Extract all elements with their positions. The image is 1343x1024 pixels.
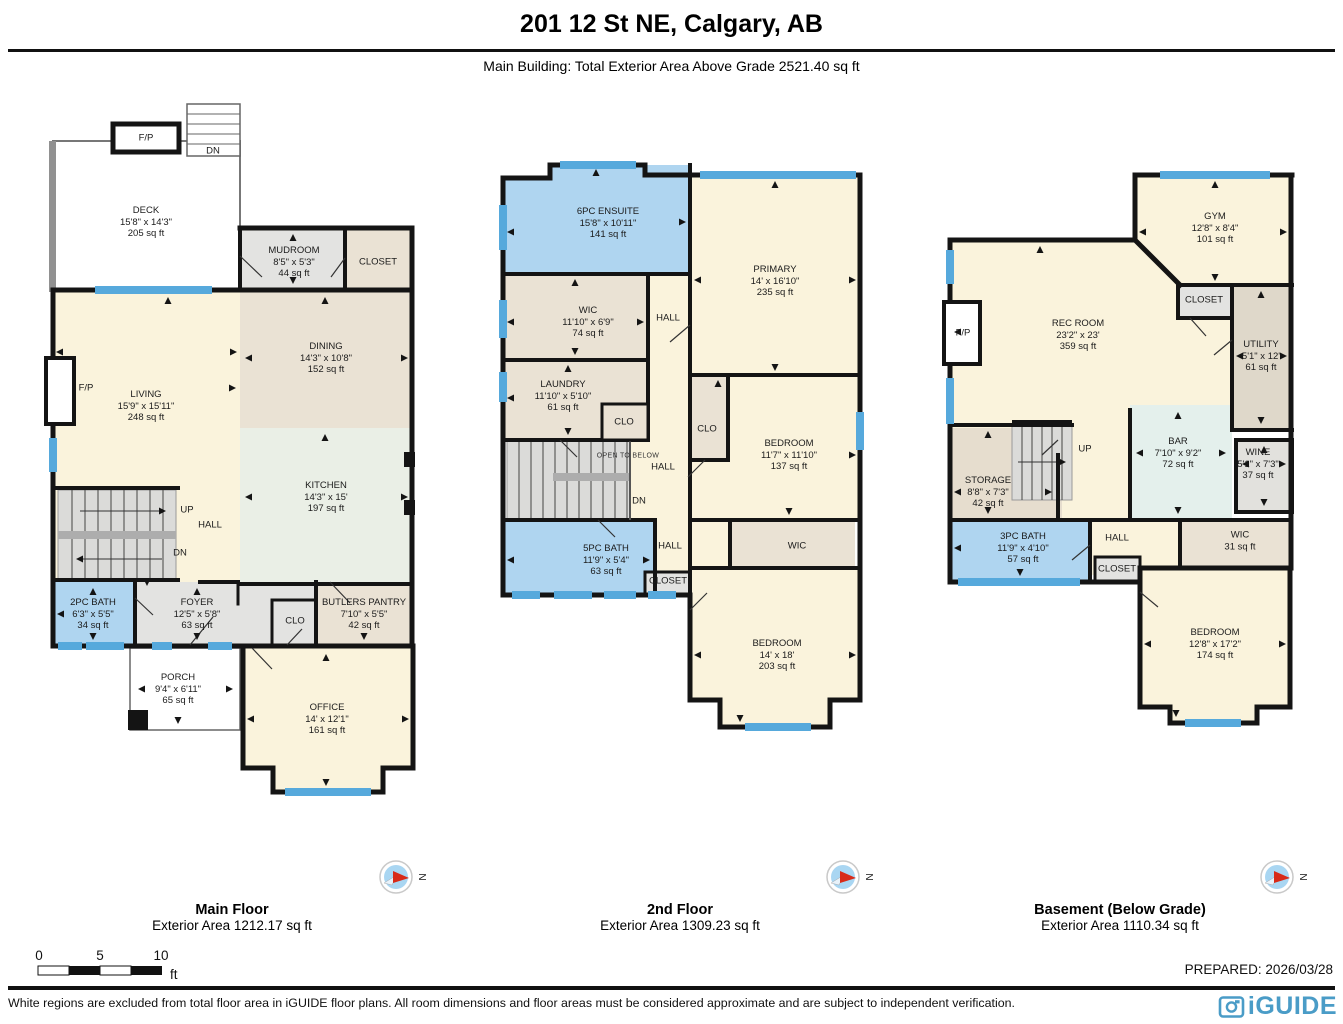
room-label-gym: GYM12'8" x 8'4"101 sq ft	[1192, 211, 1239, 246]
room-dims: 12'8" x 17'2"	[1189, 638, 1241, 650]
room-name: GYM	[1192, 211, 1239, 223]
dn-label: DN	[632, 496, 646, 507]
compass-icon: N	[380, 861, 427, 893]
iguide-logo: iGUIDE	[1218, 992, 1337, 1021]
room-area: 61 sq ft	[535, 402, 592, 414]
room-dims: 11'9" x 4'10"	[997, 542, 1048, 554]
clo-label: CLO	[697, 424, 717, 435]
scale-unit: ft	[170, 967, 178, 982]
hall-label: HALL	[1105, 533, 1129, 544]
room-dims: 11'7" x 11'10"	[761, 449, 817, 461]
room-label-wic: WIC31 sq ft	[1224, 530, 1255, 553]
room-dims: 8'8" x 7'3"	[965, 486, 1011, 498]
room-name: WINE	[1237, 447, 1279, 459]
floor-title: Basement (Below Grade)	[1034, 902, 1206, 918]
floor-area: Exterior Area 1110.34 sq ft	[1034, 918, 1206, 933]
closet-label: CLOSET	[649, 576, 687, 587]
scale-five: 5	[96, 948, 104, 963]
room-label-closet: CLOSET	[359, 256, 397, 268]
room-area: 31 sq ft	[1224, 541, 1255, 553]
room-area: 63 sq ft	[583, 566, 629, 578]
room-label-storage: STORAGE8'8" x 7'3"42 sq ft	[965, 475, 1011, 510]
floor-area: Exterior Area 1212.17 sq ft	[152, 918, 312, 933]
room-label-bar: BAR7'10" x 9'2"72 sq ft	[1155, 436, 1202, 471]
room-area: 152 sq ft	[300, 364, 352, 376]
disclaimer-text: White regions are excluded from total fl…	[8, 996, 1015, 1010]
room-label-2pc-bath: 2PC BATH6'3" x 5'5"34 sq ft	[70, 597, 116, 632]
room-dims: 14' x 16'10"	[751, 275, 800, 287]
room-name: FOYER	[174, 597, 221, 609]
room-name: CLOSET	[359, 256, 397, 268]
floor-caption-basement: Basement (Below Grade)Exterior Area 1110…	[1034, 902, 1206, 933]
room-name: KITCHEN	[304, 480, 347, 492]
compass-icon: N	[1261, 861, 1308, 893]
iguide-logo-text: iGUIDE	[1248, 992, 1337, 1021]
header-divider	[8, 49, 1335, 52]
fp-label: F/P	[139, 133, 154, 144]
floor-caption-main: Main FloorExterior Area 1212.17 sq ft	[152, 902, 312, 933]
room-dims: 5'1" x 7'3"	[1237, 458, 1279, 470]
room-area: 235 sq ft	[751, 287, 800, 299]
room-dims: 7'10" x 5'5"	[322, 608, 406, 620]
room-area: 44 sq ft	[268, 268, 319, 280]
room-name: REC ROOM	[1052, 318, 1104, 330]
room-label-kitchen: KITCHEN14'3" x 15'197 sq ft	[304, 480, 347, 515]
room-label-rec-room: REC ROOM23'2" x 23'359 sq ft	[1052, 318, 1104, 353]
closet-label: CLOSET	[1185, 295, 1223, 306]
room-dims: 12'8" x 8'4"	[1192, 222, 1239, 234]
hall-label: HALL	[656, 313, 680, 324]
room-label-bedroom: BEDROOM11'7" x 11'10"137 sq ft	[761, 438, 817, 473]
room-area: 161 sq ft	[305, 725, 348, 737]
room-area: 203 sq ft	[752, 661, 801, 673]
room-area: 248 sq ft	[118, 412, 175, 424]
room-name: LIVING	[118, 389, 175, 401]
wic-label: WIC	[788, 541, 806, 552]
room-label-wic: WIC11'10" x 6'9"74 sq ft	[562, 305, 613, 340]
room-dims: 7'10" x 9'2"	[1155, 447, 1202, 459]
room-area: 61 sq ft	[1242, 362, 1280, 374]
hall-label: HALL	[651, 462, 675, 473]
room-label-primary: PRIMARY14' x 16'10"235 sq ft	[751, 264, 800, 299]
room-dims: 15'8" x 14'3"	[120, 216, 172, 228]
room-area: 57 sq ft	[997, 554, 1048, 566]
dn-label: DN	[173, 548, 187, 559]
room-name: DINING	[300, 341, 352, 353]
room-dims: 12'5" x 5'8"	[174, 608, 221, 620]
room-dims: 11'10" x 6'9"	[562, 316, 613, 328]
room-area: 42 sq ft	[322, 620, 406, 632]
prepared-date: PREPARED: 2026/03/28	[1185, 962, 1333, 977]
room-dims: 6'3" x 5'5"	[70, 608, 116, 620]
room-dims: 5'1" x 12'	[1242, 350, 1280, 362]
floorplan-sheet: N N N 201 12 St NE, Calgary, AB Main Bui…	[0, 0, 1343, 1024]
clo-label: CLO	[614, 417, 634, 428]
room-name: 5PC BATH	[583, 543, 629, 555]
floor-area: Exterior Area 1309.23 sq ft	[600, 918, 760, 933]
room-label-butlers-pantry: BUTLERS PANTRY7'10" x 5'5"42 sq ft	[322, 597, 406, 632]
room-name: BEDROOM	[761, 438, 817, 450]
dn-label: DN	[206, 146, 220, 157]
compass-n-label: N	[863, 873, 874, 880]
room-area: 197 sq ft	[304, 503, 347, 515]
room-label-dining: DINING14'3" x 10'8"152 sq ft	[300, 341, 352, 376]
room-dims: 11'10" x 5'10"	[535, 390, 592, 402]
room-area: 137 sq ft	[761, 461, 817, 473]
room-area: 74 sq ft	[562, 328, 613, 340]
floor-caption-second: 2nd FloorExterior Area 1309.23 sq ft	[600, 902, 760, 933]
room-name: BUTLERS PANTRY	[322, 597, 406, 609]
open-to-below-label: OPEN TO BELOW	[597, 453, 659, 460]
room-area: 42 sq ft	[965, 498, 1011, 510]
clo-label: CLO	[285, 616, 305, 627]
room-label-office: OFFICE14' x 12'1"161 sq ft	[305, 702, 348, 737]
room-label-mudroom: MUDROOM8'5" x 5'3"44 sq ft	[268, 245, 319, 280]
floorplan-main	[46, 104, 415, 796]
room-name: MUDROOM	[268, 245, 319, 257]
room-dims: 14' x 12'1"	[305, 713, 348, 725]
room-label-bedroom: BEDROOM14' x 18'203 sq ft	[752, 638, 801, 673]
room-name: WIC	[1224, 530, 1255, 542]
up-label: UP	[1078, 444, 1091, 455]
fp-label: F/P	[956, 328, 971, 339]
room-area: 359 sq ft	[1052, 341, 1104, 353]
room-name: BAR	[1155, 436, 1202, 448]
room-label-ensuite: 6PC ENSUITE15'8" x 10'11"141 sq ft	[577, 206, 639, 241]
room-area: 174 sq ft	[1189, 650, 1241, 662]
floor-title: Main Floor	[152, 902, 312, 918]
room-label-utility: UTILITY5'1" x 12'61 sq ft	[1242, 339, 1280, 374]
room-name: WIC	[562, 305, 613, 317]
floorplan-canvas: N N N	[0, 0, 1343, 1024]
room-dims: 11'9" x 5'4"	[583, 554, 629, 566]
room-label-laundry: LAUNDRY11'10" x 5'10"61 sq ft	[535, 379, 592, 414]
room-label-living: LIVING15'9" x 15'11"248 sq ft	[118, 389, 175, 424]
room-name: UTILITY	[1242, 339, 1280, 351]
room-dims: 14'3" x 10'8"	[300, 352, 352, 364]
room-label-porch: PORCH9'4" x 6'11"65 sq ft	[155, 672, 201, 707]
scale-ten: 10	[153, 948, 168, 963]
floor-title: 2nd Floor	[600, 902, 760, 918]
footer-divider	[8, 986, 1335, 990]
room-name: BEDROOM	[1189, 627, 1241, 639]
room-dims: 8'5" x 5'3"	[268, 256, 319, 268]
room-area: 141 sq ft	[577, 229, 639, 241]
room-name: 6PC ENSUITE	[577, 206, 639, 218]
page-title: 201 12 St NE, Calgary, AB	[0, 10, 1343, 39]
room-name: LAUNDRY	[535, 379, 592, 391]
hall-label: HALL	[658, 541, 682, 552]
room-name: STORAGE	[965, 475, 1011, 487]
room-label-deck: DECK15'8" x 14'3"205 sq ft	[120, 205, 172, 240]
compass-n-label: N	[416, 873, 427, 880]
room-name: 2PC BATH	[70, 597, 116, 609]
up-label: UP	[180, 505, 193, 516]
room-dims: 15'9" x 15'11"	[118, 400, 175, 412]
room-dims: 23'2" x 23'	[1052, 329, 1104, 341]
room-label-foyer: FOYER12'5" x 5'8"63 sq ft	[174, 597, 221, 632]
room-area: 72 sq ft	[1155, 459, 1202, 471]
room-area: 101 sq ft	[1192, 234, 1239, 246]
room-name: DECK	[120, 205, 172, 217]
scale-bar	[38, 966, 162, 975]
room-name: BEDROOM	[752, 638, 801, 650]
room-label-bedroom: BEDROOM12'8" x 17'2"174 sq ft	[1189, 627, 1241, 662]
room-area: 63 sq ft	[174, 620, 221, 632]
fp-label: F/P	[79, 383, 94, 394]
room-name: PORCH	[155, 672, 201, 684]
compass-n-label: N	[1297, 873, 1308, 880]
room-area: 65 sq ft	[155, 695, 201, 707]
room-area: 205 sq ft	[120, 228, 172, 240]
room-name: 3PC BATH	[997, 531, 1048, 543]
hall-label: HALL	[198, 520, 222, 531]
room-dims: 15'8" x 10'11"	[577, 217, 639, 229]
closet-label: CLOSET	[1098, 564, 1136, 575]
room-area: 34 sq ft	[70, 620, 116, 632]
compass-icon: N	[827, 861, 874, 893]
room-name: PRIMARY	[751, 264, 800, 276]
room-label-wine: WINE5'1" x 7'3"37 sq ft	[1237, 447, 1279, 482]
room-name: OFFICE	[305, 702, 348, 714]
scale-zero: 0	[35, 948, 43, 963]
room-area: 37 sq ft	[1237, 470, 1279, 482]
room-dims: 9'4" x 6'11"	[155, 683, 201, 695]
iguide-logo-icon	[1218, 994, 1245, 1019]
page-subtitle: Main Building: Total Exterior Area Above…	[0, 58, 1343, 74]
room-dims: 14'3" x 15'	[304, 491, 347, 503]
room-dims: 14' x 18'	[752, 649, 801, 661]
room-label-3pc-bath: 3PC BATH11'9" x 4'10"57 sq ft	[997, 531, 1048, 566]
room-label-5pc-bath: 5PC BATH11'9" x 5'4"63 sq ft	[583, 543, 629, 578]
